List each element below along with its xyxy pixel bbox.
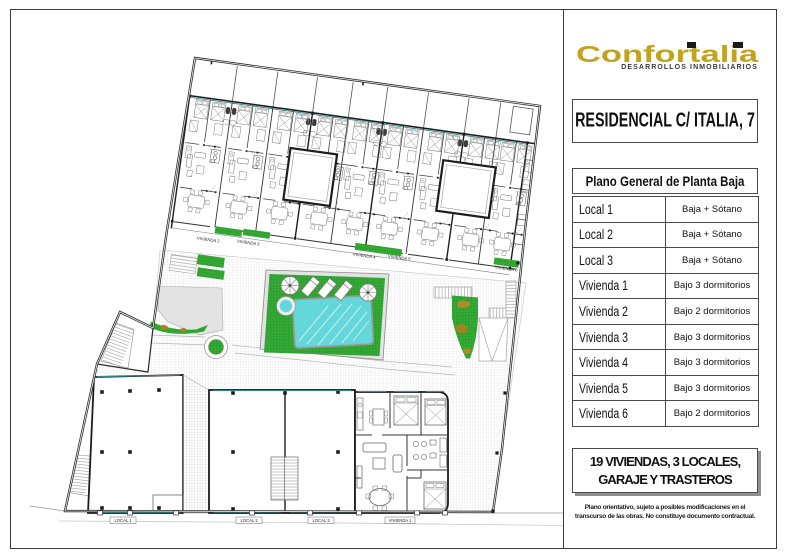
svg-text:VIVIENDA 1: VIVIENDA 1 — [389, 518, 412, 523]
svg-text:LOCAL 2: LOCAL 2 — [240, 518, 258, 523]
svg-text:LOCAL 1: LOCAL 1 — [114, 518, 132, 523]
svg-text:LOCAL 3: LOCAL 3 — [312, 518, 330, 523]
svg-text:VIVIENDA 2: VIVIENDA 2 — [197, 235, 221, 243]
